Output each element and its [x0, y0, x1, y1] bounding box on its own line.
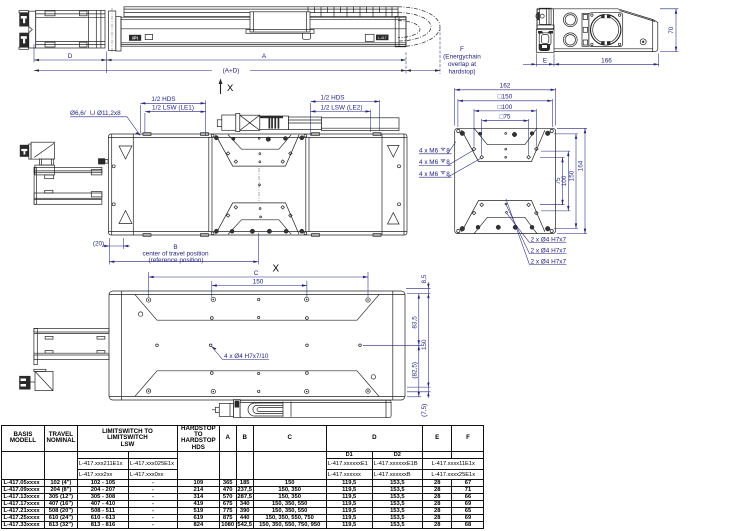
svg-text:Ø6,6/: Ø6,6/: [70, 110, 86, 117]
svg-text:(7,5): (7,5): [421, 404, 428, 417]
svg-text:X: X: [273, 264, 280, 275]
svg-text:L-417: L-417: [378, 36, 387, 40]
svg-text:hardstop): hardstop): [449, 69, 476, 76]
svg-text:overlap at: overlap at: [448, 61, 476, 68]
svg-text:162: 162: [500, 83, 511, 90]
svg-text:150: 150: [421, 339, 428, 350]
svg-text:1/2 HDS: 1/2 HDS: [151, 96, 175, 103]
svg-text:(reference position): (reference position): [148, 257, 203, 264]
svg-text:150: 150: [253, 278, 264, 285]
svg-text:1/2 LSW (LE2): 1/2 LSW (LE2): [321, 104, 363, 111]
svg-text:(Energychain: (Energychain: [443, 54, 481, 61]
svg-text:4 x M6: 4 x M6: [419, 171, 439, 178]
svg-text:D: D: [68, 53, 73, 60]
svg-text:(A+D): (A+D): [223, 68, 240, 75]
svg-text:F: F: [460, 46, 464, 53]
svg-text:2 x Ø4 H7x7: 2 x Ø4 H7x7: [531, 258, 567, 265]
svg-text:166: 166: [601, 57, 612, 64]
svg-text:IPI: IPI: [132, 36, 138, 41]
svg-text:□150: □150: [498, 94, 513, 101]
svg-text:70: 70: [668, 26, 675, 34]
svg-text:4 x M6: 4 x M6: [419, 148, 439, 155]
svg-text:150: 150: [569, 170, 576, 181]
svg-text:□100: □100: [498, 104, 513, 111]
svg-text:(82,5): (82,5): [412, 362, 419, 379]
svg-text:1/2 LSW (LE1): 1/2 LSW (LE1): [152, 105, 194, 112]
svg-text:(20): (20): [93, 241, 104, 248]
svg-text:X: X: [227, 83, 234, 94]
svg-text:1/2 HDS: 1/2 HDS: [320, 94, 344, 101]
svg-text:4 x Ø4 H7x7/10: 4 x Ø4 H7x7/10: [224, 353, 269, 360]
svg-text:4 x M6: 4 x M6: [419, 159, 439, 166]
svg-text:A: A: [262, 53, 267, 60]
svg-text:100: 100: [561, 175, 568, 186]
svg-text:C: C: [254, 270, 259, 277]
svg-text:2 x Ø4 H7x7: 2 x Ø4 H7x7: [531, 236, 567, 243]
svg-text:2 x Ø4 H7x7: 2 x Ø4 H7x7: [531, 247, 567, 254]
svg-text:□75: □75: [500, 114, 511, 121]
svg-text:83,5: 83,5: [412, 316, 419, 329]
svg-text:Ø11,2x8: Ø11,2x8: [97, 110, 121, 117]
svg-text:8,5: 8,5: [421, 274, 428, 283]
svg-text:164: 164: [578, 160, 585, 171]
svg-text:E: E: [543, 57, 547, 64]
